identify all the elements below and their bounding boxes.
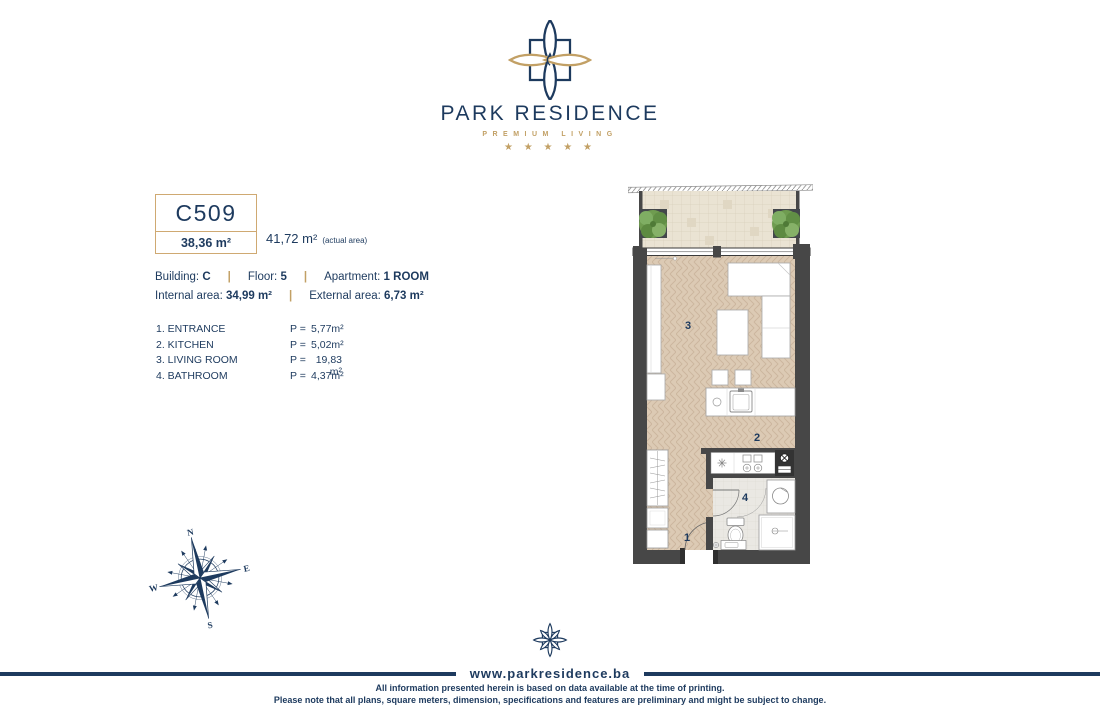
room-name: 2. KITCHEN xyxy=(156,339,290,351)
area-label: P = xyxy=(290,354,311,366)
external-area-label: External area: xyxy=(309,290,381,302)
toilet-icon xyxy=(727,518,744,544)
room-list-item: 3. LIVING ROOM P = 19,83 m² xyxy=(156,354,342,370)
brand-stars-icon: ★ ★ ★ ★ ★ xyxy=(0,142,1100,153)
separator-bar: | xyxy=(304,271,307,283)
compass-w: W xyxy=(148,582,159,594)
label-kitchen: 2 xyxy=(754,432,760,444)
disclaimer-line-2: Please note that all plans, square meter… xyxy=(0,694,1100,706)
compass-rose-icon: N E S W xyxy=(148,526,252,635)
floor-plan: 3 2 4 1 xyxy=(628,178,813,573)
kitchen-appliance-strip xyxy=(701,448,795,478)
washing-machine-icon xyxy=(767,480,795,513)
separator-bar: | xyxy=(228,271,231,283)
room-area: 5,77m² xyxy=(311,323,342,335)
label-living-room: 3 xyxy=(685,320,691,332)
brand-tagline: PREMIUM LIVING xyxy=(0,131,1100,138)
entrance-closet xyxy=(647,450,668,548)
shaft-icon xyxy=(775,450,794,476)
details-row-2: Internal area: 34,99 m² | External area:… xyxy=(155,290,429,302)
brand-header: PARK RESIDENCE PREMIUM LIVING ★ ★ ★ ★ ★ xyxy=(0,20,1100,153)
footer-logo-icon xyxy=(0,622,1100,663)
footer-disclaimer: All information presented herein is base… xyxy=(0,682,1100,706)
planter-tree-icon xyxy=(639,209,667,238)
actual-area-value: 41,72 m² xyxy=(266,231,317,246)
unit-code: C509 xyxy=(156,195,256,231)
internal-area-value: 34,99 m² xyxy=(226,290,272,302)
area-label: P = xyxy=(290,370,311,382)
details-row-1: Building: C | Floor: 5 | Apartment: 1 RO… xyxy=(155,271,429,283)
area-label: P = xyxy=(290,339,311,351)
area-label: P = xyxy=(290,323,311,335)
building-value: C xyxy=(202,271,210,283)
unit-area: 38,36 m² xyxy=(156,231,256,253)
disclaimer-line-1: All information presented herein is base… xyxy=(0,682,1100,694)
footer-rule-left xyxy=(0,672,456,676)
label-entrance: 1 xyxy=(684,532,690,544)
room-area: 5,02m² xyxy=(311,339,342,351)
room-list: 1. ENTRANCE P = 5,77m² 2. KITCHEN P = 5,… xyxy=(156,323,342,385)
brand-name: PARK RESIDENCE xyxy=(0,102,1100,126)
apartment-label: Apartment: xyxy=(324,271,380,283)
footer-site-row: www.parkresidence.ba xyxy=(0,666,1100,681)
building-label: Building: xyxy=(155,271,199,283)
floor-label: Floor: xyxy=(248,271,277,283)
bathroom xyxy=(706,478,795,550)
actual-area-note: (actual area) xyxy=(322,236,367,245)
room-name: 3. LIVING ROOM xyxy=(156,354,290,366)
label-bathroom: 4 xyxy=(742,492,749,504)
floor-value: 5 xyxy=(280,271,286,283)
website-link[interactable]: www.parkresidence.ba xyxy=(470,666,630,681)
apartment-value: 1 ROOM xyxy=(384,271,429,283)
room-name: 1. ENTRANCE xyxy=(156,323,290,335)
kitchen-counter-sink xyxy=(706,388,795,416)
room-list-item: 1. ENTRANCE P = 5,77m² xyxy=(156,323,342,339)
compass-n: N xyxy=(186,526,195,537)
coffee-table xyxy=(717,310,748,355)
unit-details: Building: C | Floor: 5 | Apartment: 1 RO… xyxy=(155,271,429,309)
footer-rule-right xyxy=(644,672,1100,676)
room-list-item: 2. KITCHEN P = 5,02m² xyxy=(156,339,342,355)
external-area-value: 6,73 m² xyxy=(384,290,424,302)
unit-actual-area: 41,72 m² (actual area) xyxy=(266,231,367,246)
room-list-item: 4. BATHROOM P = 4,37m² xyxy=(156,370,342,386)
compass-e: E xyxy=(243,563,251,574)
separator-bar: | xyxy=(289,290,292,302)
planter-tree-icon xyxy=(772,209,800,238)
shower-tray-icon xyxy=(759,515,795,550)
brochure-page: PARK RESIDENCE PREMIUM LIVING ★ ★ ★ ★ ★ … xyxy=(0,0,1100,720)
room-name: 4. BATHROOM xyxy=(156,370,290,382)
internal-area-label: Internal area: xyxy=(155,290,223,302)
brand-logo-flower-icon xyxy=(506,20,594,100)
unit-card: C509 38,36 m² xyxy=(155,194,257,254)
room-area: 4,37m² xyxy=(311,370,342,382)
